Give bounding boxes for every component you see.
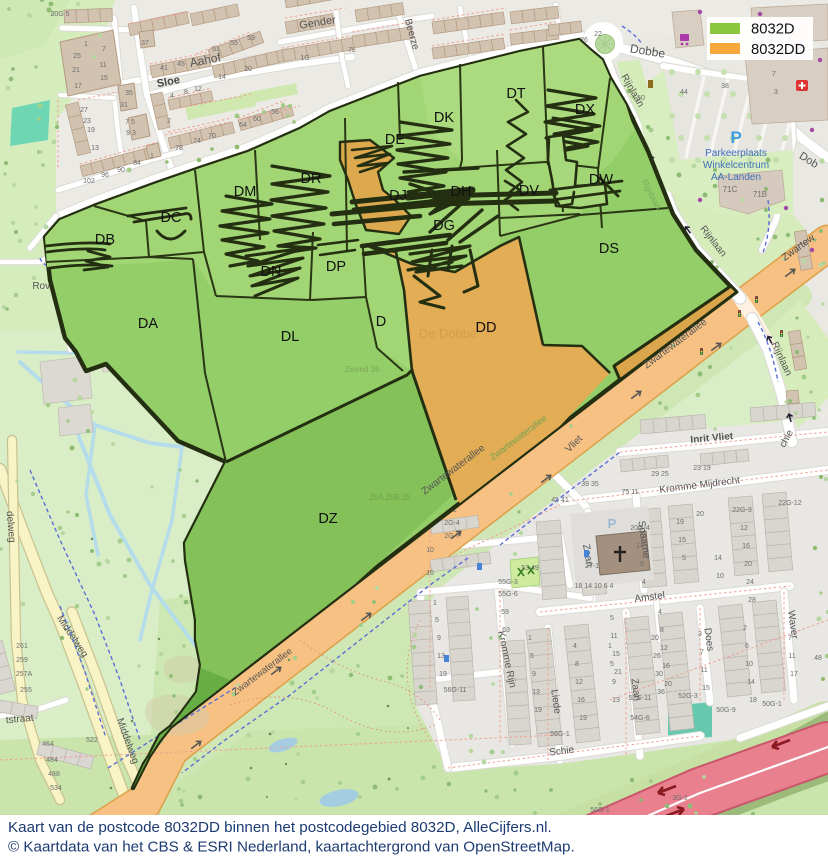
- svg-text:12: 12: [194, 86, 202, 93]
- svg-text:9 3: 9 3: [126, 130, 136, 137]
- svg-text:14: 14: [714, 555, 722, 562]
- svg-text:84: 84: [133, 160, 141, 167]
- svg-text:50G-1: 50G-1: [762, 701, 782, 708]
- svg-text:DV: DV: [519, 183, 539, 199]
- svg-text:50: 50: [637, 95, 645, 102]
- svg-text:55: 55: [230, 40, 238, 47]
- svg-text:4: 4: [658, 609, 662, 616]
- svg-text:20G-4: 20G-4: [630, 525, 650, 532]
- svg-text:20: 20: [651, 635, 659, 642]
- svg-text:19: 19: [534, 707, 542, 714]
- svg-text:7: 7: [102, 46, 106, 53]
- svg-text:9: 9: [612, 679, 616, 686]
- svg-text:8032D: 8032D: [751, 22, 795, 38]
- svg-text:DE: DE: [385, 132, 405, 148]
- svg-text:DM: DM: [234, 184, 257, 200]
- svg-text:16: 16: [742, 543, 750, 550]
- svg-text:50G-9: 50G-9: [716, 707, 736, 714]
- svg-text:DC: DC: [161, 210, 182, 226]
- svg-text:12: 12: [660, 645, 668, 652]
- svg-text:2G-4: 2G-4: [444, 520, 460, 527]
- svg-text:Parkeerplaats: Parkeerplaats: [705, 148, 767, 159]
- svg-text:12: 12: [740, 525, 748, 532]
- svg-text:8: 8: [575, 661, 579, 668]
- svg-text:© Kaartdata van het CBS & ESRI: © Kaartdata van het CBS & ESRI Nederland…: [8, 839, 575, 856]
- svg-text:56G-1: 56G-1: [590, 807, 610, 814]
- svg-text:59: 59: [247, 35, 255, 42]
- svg-text:Zwend 35: Zwend 35: [344, 365, 380, 374]
- svg-text:55G-6: 55G-6: [498, 591, 518, 598]
- svg-text:15: 15: [612, 651, 620, 658]
- svg-text:9: 9: [437, 635, 441, 642]
- svg-text:7: 7: [700, 649, 704, 656]
- svg-text:6: 6: [745, 643, 749, 650]
- svg-text:35: 35: [125, 90, 133, 97]
- svg-text:56G-11: 56G-11: [444, 687, 467, 694]
- svg-text:74: 74: [193, 138, 201, 145]
- svg-text:13: 13: [532, 689, 540, 696]
- svg-text:DS: DS: [599, 241, 619, 257]
- svg-text:10: 10: [716, 573, 724, 580]
- svg-text:15: 15: [702, 685, 710, 692]
- svg-text:17: 17: [74, 83, 82, 90]
- svg-text:13: 13: [612, 697, 620, 704]
- svg-text:9: 9: [532, 671, 536, 678]
- svg-text:24: 24: [746, 579, 754, 586]
- svg-text:45 41: 45 41: [551, 497, 569, 504]
- svg-text:19: 19: [676, 519, 684, 526]
- svg-text:26: 26: [653, 653, 661, 660]
- svg-text:Kaart van de postcode 8032DD b: Kaart van de postcode 8032DD binnen het …: [8, 819, 552, 836]
- svg-text:16: 16: [662, 663, 670, 670]
- svg-text:41: 41: [160, 65, 168, 72]
- svg-text:7L: 7L: [348, 47, 356, 54]
- svg-text:2: 2: [743, 625, 747, 632]
- svg-text:5: 5: [682, 555, 686, 562]
- svg-text:P: P: [730, 128, 741, 147]
- svg-text:DR: DR: [301, 171, 322, 187]
- svg-text:71B: 71B: [753, 190, 767, 199]
- svg-text:19: 19: [439, 671, 447, 678]
- svg-text:522: 522: [86, 737, 98, 744]
- svg-text:Winkelcentrum: Winkelcentrum: [703, 160, 769, 171]
- svg-text:45: 45: [177, 61, 185, 68]
- svg-text:20: 20: [664, 681, 672, 688]
- svg-text:9: 9: [640, 561, 644, 568]
- svg-text:16: 16: [426, 570, 434, 577]
- svg-text:22G-12: 22G-12: [778, 500, 801, 507]
- svg-text:259: 259: [16, 657, 28, 664]
- svg-text:4: 4: [573, 643, 577, 650]
- svg-text:11: 11: [610, 633, 617, 640]
- svg-text:27: 27: [80, 107, 88, 114]
- svg-text:DA: DA: [138, 316, 158, 332]
- svg-text:5: 5: [610, 615, 614, 622]
- svg-text:25: 25: [73, 53, 81, 60]
- svg-text:7 5: 7 5: [125, 119, 135, 126]
- svg-text:7: 7: [772, 71, 776, 78]
- svg-text:16: 16: [577, 697, 585, 704]
- svg-text:3: 3: [698, 631, 702, 638]
- svg-text:102: 102: [83, 178, 95, 185]
- svg-text:8: 8: [660, 627, 664, 634]
- svg-text:75 11: 75 11: [622, 489, 639, 496]
- svg-text:1: 1: [150, 153, 154, 160]
- svg-text:2G-7: 2G-7: [444, 533, 460, 540]
- svg-text:37: 37: [141, 40, 149, 47]
- svg-text:31: 31: [120, 102, 128, 109]
- svg-text:1: 1: [528, 635, 532, 642]
- svg-text:1G: 1G: [300, 55, 309, 62]
- svg-text:488: 488: [48, 771, 60, 778]
- svg-text:20: 20: [244, 66, 252, 73]
- svg-text:DN: DN: [261, 264, 282, 280]
- svg-text:19: 19: [87, 127, 95, 134]
- svg-text:5: 5: [435, 617, 439, 624]
- svg-text:78: 78: [175, 145, 183, 152]
- svg-text:53 49: 53 49: [521, 565, 539, 572]
- svg-text:DL: DL: [281, 329, 300, 345]
- svg-text:14: 14: [636, 543, 644, 550]
- svg-text:11: 11: [700, 667, 707, 674]
- svg-text:20: 20: [744, 561, 752, 568]
- svg-text:DX: DX: [575, 102, 595, 118]
- svg-text:5: 5: [530, 653, 534, 660]
- svg-text:54G-6: 54G-6: [630, 715, 650, 722]
- svg-text:71C: 71C: [723, 185, 738, 194]
- svg-text:257A: 257A: [16, 671, 33, 678]
- svg-text:261: 261: [16, 643, 28, 650]
- svg-text:28: 28: [748, 597, 756, 604]
- svg-text:3G-1: 3G-1: [672, 795, 688, 802]
- svg-text:DB: DB: [95, 232, 115, 248]
- svg-text:4: 4: [170, 93, 174, 100]
- svg-text:11: 11: [788, 653, 795, 660]
- svg-text:36: 36: [657, 689, 665, 696]
- svg-text:59: 59: [501, 609, 509, 616]
- svg-text:1: 1: [433, 600, 437, 607]
- svg-text:96: 96: [101, 172, 109, 179]
- svg-text:55G-3: 55G-3: [498, 579, 518, 586]
- svg-text:20G 5: 20G 5: [50, 11, 69, 18]
- svg-text:23: 23: [83, 118, 91, 125]
- svg-text:52G-3: 52G-3: [678, 693, 698, 700]
- svg-text:DJ: DJ: [389, 188, 407, 204]
- svg-text:P: P: [608, 516, 617, 531]
- svg-text:15: 15: [100, 75, 108, 82]
- svg-text:60: 60: [253, 116, 261, 123]
- svg-text:DT: DT: [506, 86, 525, 102]
- svg-text:18 14 10 6 4: 18 14 10 6 4: [575, 583, 614, 590]
- svg-text:23 19: 23 19: [693, 465, 711, 472]
- svg-text:90: 90: [117, 167, 125, 174]
- svg-text:10: 10: [426, 547, 434, 554]
- svg-text:D: D: [376, 314, 386, 330]
- svg-text:1: 1: [608, 643, 612, 650]
- svg-text:14: 14: [218, 74, 226, 81]
- svg-text:19: 19: [579, 715, 587, 722]
- svg-text:56: 56: [271, 109, 279, 116]
- svg-text:48: 48: [814, 655, 822, 662]
- svg-text:464: 464: [42, 741, 54, 748]
- svg-text:22: 22: [594, 31, 602, 38]
- svg-text:DZ: DZ: [318, 511, 337, 527]
- svg-text:21: 21: [614, 669, 622, 676]
- svg-text:22G-3: 22G-3: [732, 507, 752, 514]
- svg-text:70: 70: [208, 133, 216, 140]
- svg-text:2T-1: 2T-1: [585, 563, 599, 570]
- svg-text:25A 25B 25: 25A 25B 25: [369, 493, 411, 502]
- svg-text:12: 12: [575, 679, 583, 686]
- svg-text:20: 20: [696, 511, 704, 518]
- svg-text:7: 7: [788, 635, 792, 642]
- svg-text:38: 38: [721, 83, 729, 90]
- svg-text:51: 51: [212, 46, 220, 53]
- svg-text:1: 1: [84, 41, 88, 48]
- svg-text:44: 44: [680, 89, 688, 96]
- svg-text:8: 8: [184, 89, 188, 96]
- svg-text:DK: DK: [434, 110, 454, 126]
- svg-text:18: 18: [749, 697, 757, 704]
- svg-text:8032DD: 8032DD: [751, 42, 805, 58]
- svg-text:13: 13: [91, 145, 99, 152]
- svg-text:DW: DW: [589, 172, 613, 188]
- svg-text:13: 13: [437, 653, 445, 660]
- svg-text:17: 17: [790, 671, 798, 678]
- svg-text:63: 63: [502, 627, 510, 634]
- svg-text:DD: DD: [476, 320, 497, 336]
- svg-text:56G-1: 56G-1: [550, 731, 570, 738]
- svg-text:De Dobbe: De Dobbe: [419, 326, 478, 341]
- svg-text:15: 15: [678, 537, 686, 544]
- svg-text:29 25: 29 25: [651, 471, 669, 478]
- svg-text:21: 21: [72, 67, 80, 74]
- svg-text:AA-Landen: AA-Landen: [711, 172, 761, 183]
- svg-text:2: 2: [167, 118, 171, 125]
- svg-text:14: 14: [747, 679, 755, 686]
- svg-text:3: 3: [774, 89, 778, 96]
- svg-text:DG: DG: [433, 218, 455, 234]
- svg-text:4: 4: [642, 579, 646, 586]
- svg-text:11: 11: [99, 62, 106, 69]
- svg-text:DP: DP: [326, 259, 346, 275]
- svg-text:5: 5: [610, 661, 614, 668]
- svg-text:DH: DH: [451, 184, 472, 200]
- svg-text:52G-11: 52G-11: [629, 695, 652, 702]
- svg-text:534: 534: [50, 785, 62, 792]
- svg-text:39 35: 39 35: [581, 481, 599, 488]
- svg-text:10: 10: [745, 661, 753, 668]
- svg-text:255: 255: [20, 687, 32, 694]
- svg-text:484: 484: [46, 757, 58, 764]
- svg-text:64: 64: [239, 122, 247, 129]
- svg-text:30: 30: [655, 671, 663, 678]
